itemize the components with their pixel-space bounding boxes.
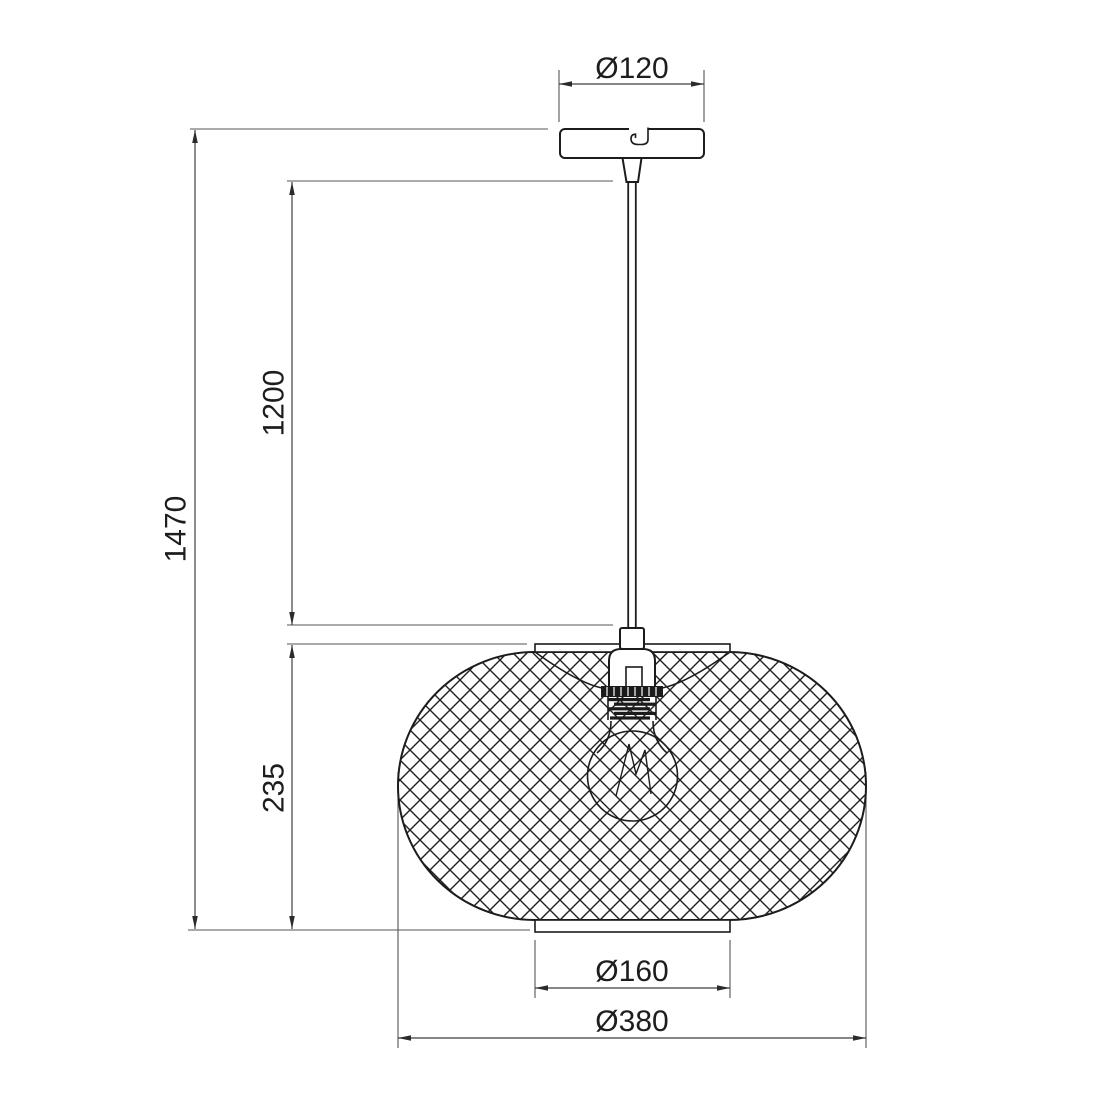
dimension-label-suspension: 1200	[258, 370, 291, 437]
knurled-ring	[601, 686, 663, 697]
suspension-rod	[620, 182, 644, 649]
dimension-label-overall-drop: 1470	[160, 496, 193, 563]
dimension-suspension-length: 1200	[258, 182, 295, 625]
technical-drawing-page: Ø120 1470 1200 235 Ø160	[0, 0, 1100, 1100]
dimension-overall-drop: 1470	[160, 130, 198, 929]
dimension-opening-diameter: Ø160	[535, 955, 730, 991]
dimension-label-shade-diameter: Ø380	[595, 1005, 668, 1038]
pendant-lamp-drawing: Ø120 1470 1200 235 Ø160	[0, 0, 1100, 1100]
dimension-label-opening: Ø160	[595, 955, 668, 988]
dimension-shade-height: 235	[258, 645, 295, 929]
dimension-shade-diameter: Ø380	[398, 1005, 866, 1041]
ceiling-canopy	[560, 127, 704, 159]
dimension-canopy-diameter: Ø120	[559, 52, 704, 87]
screw-thread	[608, 697, 656, 720]
strain-relief	[623, 158, 642, 182]
bottom-collar	[535, 920, 730, 932]
rod-sleeve	[620, 628, 644, 649]
dimension-label-shade-height: 235	[258, 763, 291, 813]
dimension-label-canopy: Ø120	[595, 52, 668, 85]
